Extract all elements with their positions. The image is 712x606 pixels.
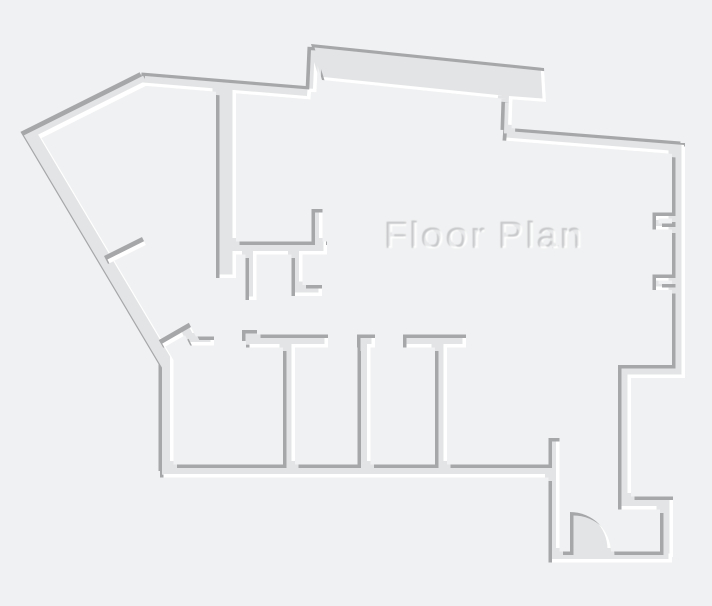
floor-plan-canvas: Floor Plan	[0, 0, 712, 606]
floor-plan-page: Floor Plan	[0, 0, 712, 606]
floor-plan-title: Floor Plan	[384, 215, 584, 257]
wall-top-jog-right	[506, 99, 507, 130]
wall-top-jog-left	[311, 47, 313, 92]
